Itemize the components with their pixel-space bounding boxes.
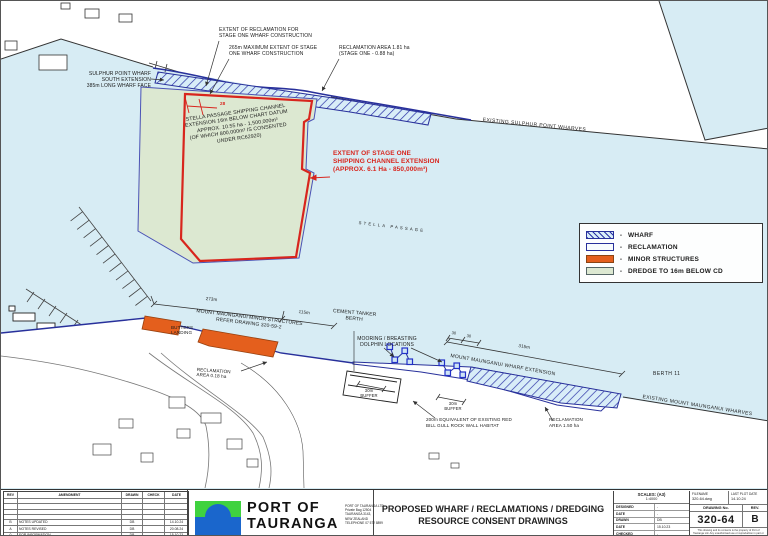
scales-row: DESIGNED- — [614, 504, 689, 511]
divider — [187, 490, 188, 536]
legend-row-dredge: - DREDGE TO 16m BELOW CD — [586, 265, 756, 277]
rev-col-header: REV — [4, 492, 18, 498]
scales-block: SCALES: (A3) 1:4000 DESIGNED- DATE- DRAW… — [613, 491, 689, 536]
scales-header: SCALES: (A3) 1:4000 — [614, 491, 689, 504]
label-dim-115: 115m — [298, 309, 310, 316]
legend-label-minor-structures: MINOR STRUCTURES — [628, 256, 699, 263]
legend-row-minor-structures: - MINOR STRUCTURES — [586, 253, 756, 265]
wharf-swatch — [586, 231, 614, 239]
label-buffer-a: 30m BUFFER — [353, 388, 385, 398]
drawing-number: 320-64 — [690, 512, 743, 527]
drawn-col-header: DRAWN — [122, 492, 143, 498]
label-reclamation-150: RECLAMATION AREA 1.50 ha — [549, 417, 583, 428]
filename-value: 320-64.dwg — [692, 497, 726, 501]
legend-dash: - — [614, 232, 628, 239]
label-red-bill-habitat: 200m EQUIVALENT OF EXISTING RED BILL GUL… — [426, 417, 512, 428]
revision-table-header: REV AMENDMENT DRAWN CHECK DATE — [4, 492, 188, 499]
file-block: FILENAME 320-64.dwg LAST PLOT DATE 14.10… — [689, 491, 767, 536]
reclamation-swatch — [586, 243, 614, 251]
scales-row: DRAWNDB — [614, 518, 689, 525]
minor-structures-swatch — [586, 255, 614, 263]
label-reclamation-018: RECLAMATION AREA 0.18 ha — [196, 367, 231, 380]
legend-dash: - — [614, 244, 628, 251]
legend-row-reclamation: - RECLAMATION — [586, 241, 756, 253]
disclaimer: This drawing and its contents is the pro… — [690, 528, 767, 536]
drawing-no-value-row: 320-64 B — [690, 512, 767, 528]
label-dim-273: 273m — [205, 296, 217, 303]
label-sulphur-point-wharf: SULPHUR POINT WHARF SOUTH EXTENSION 385m… — [41, 71, 151, 89]
filename-label: FILENAME — [692, 492, 726, 496]
title-block: REV AMENDMENT DRAWN CHECK DATE B NOTES U… — [1, 489, 768, 536]
file-row: FILENAME 320-64.dwg LAST PLOT DATE 14.10… — [690, 491, 767, 505]
scales-row: CHECKED- — [614, 531, 689, 536]
label-dim-30a: 30 — [451, 330, 456, 337]
label-buffer-b: 30m BUFFER — [437, 401, 469, 411]
scales-row: DATE- — [614, 511, 689, 518]
label-mooring-dolphins: MOORING / BREASTING DOLPHIN LOCATIONS — [343, 336, 431, 348]
label-dim-30b: 30 — [466, 333, 471, 340]
label-max-extent: 265m MAXIMUM EXTENT OF STAGE ONE WHARF C… — [229, 45, 317, 57]
date-col-header: DATE — [165, 492, 188, 498]
label-reclamation-181: RECLAMATION AREA 1.81 ha (STAGE ONE - 0.… — [339, 45, 410, 57]
check-col-header: CHECK — [143, 492, 165, 498]
revision-letter: B — [743, 512, 767, 527]
legend-dash: - — [614, 268, 628, 275]
legend: - WHARF - RECLAMATION - MINOR STRUCTURES… — [579, 223, 763, 283]
legend-label-wharf: WHARF — [628, 232, 653, 239]
label-dim-28: 28 — [220, 101, 225, 107]
rev-label: REV. — [743, 505, 767, 511]
logo-dome — [205, 504, 231, 530]
revision-row: 0 FOR INFORMATION DB 15.10.23 — [4, 533, 188, 536]
company-name: PORT OF TAURANGA — [247, 501, 339, 532]
drawing-title: PROPOSED WHARF / RECLAMATIONS / DREDGING… — [373, 504, 613, 527]
label-berth-11: BERTH 11 — [653, 371, 680, 377]
label-butters-landing: BUTTERS LANDING — [171, 325, 193, 336]
scales-value: 1:4000 — [614, 497, 689, 501]
scales-row: DATE15.10.23 — [614, 524, 689, 531]
revision-table: REV AMENDMENT DRAWN CHECK DATE B NOTES U… — [3, 491, 189, 536]
legend-label-reclamation: RECLAMATION — [628, 244, 678, 251]
plot-date-value: 14.10.24 — [731, 497, 765, 501]
label-stage-one-extent: EXTENT OF STAGE ONE SHIPPING CHANNEL EXT… — [333, 150, 483, 175]
plot-date-label: LAST PLOT DATE — [731, 492, 765, 496]
legend-row-wharf: - WHARF — [586, 229, 756, 241]
drawing-sheet: SULPHUR POINT WHARF SOUTH EXTENSION 385m… — [0, 0, 768, 536]
legend-dash: - — [614, 256, 628, 263]
legend-label-dredge: DREDGE TO 16m BELOW CD — [628, 268, 723, 275]
amendment-col-header: AMENDMENT — [18, 492, 122, 498]
dredge-swatch — [586, 267, 614, 275]
drawing-no-label: DRAWING No. — [690, 505, 743, 511]
port-of-tauranga-logo — [195, 501, 241, 535]
label-extent-reclamation: EXTENT OF RECLAMATION FOR STAGE ONE WHAR… — [219, 27, 312, 39]
drawing-no-header-row: DRAWING No. REV. — [690, 505, 767, 512]
